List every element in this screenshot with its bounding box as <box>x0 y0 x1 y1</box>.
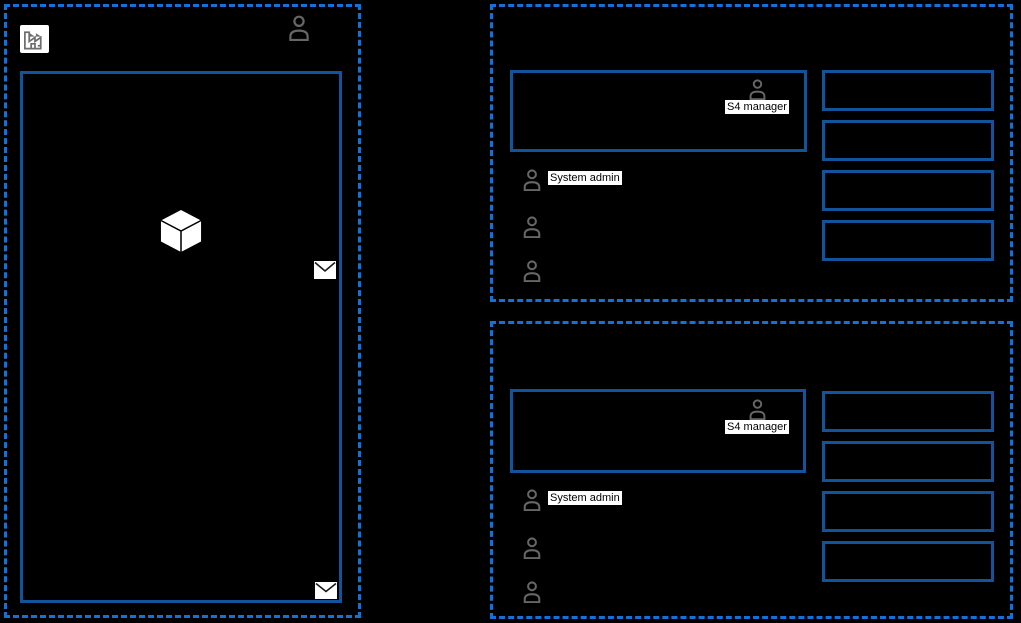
factory-icon <box>20 25 49 53</box>
person-icon <box>749 399 766 420</box>
manager-box: S4 manager <box>510 70 807 152</box>
person-icon <box>523 581 541 603</box>
manager-label: S4 manager <box>725 420 789 434</box>
bottom-right-org-group: S4 manager System admin <box>490 321 1013 619</box>
member-row: System admin <box>523 489 622 511</box>
empty-slot-box <box>822 170 994 211</box>
person-icon <box>523 489 541 511</box>
person-icon <box>523 169 541 191</box>
empty-slot-box <box>822 441 994 482</box>
empty-slot-box <box>822 220 994 261</box>
person-icon <box>749 79 766 100</box>
person-icon <box>523 537 541 559</box>
empty-slot-box <box>822 70 994 111</box>
cube-icon <box>160 209 202 258</box>
envelope-icon <box>315 582 337 604</box>
member-label: System admin <box>548 171 622 185</box>
empty-slot-box <box>822 120 994 161</box>
person-icon <box>289 15 309 41</box>
member-row <box>523 216 541 238</box>
left-system-group <box>4 4 361 618</box>
diagram-canvas: S4 manager System admin <box>0 0 1021 623</box>
envelope-icon <box>314 261 336 284</box>
empty-slot-box <box>822 541 994 582</box>
empty-slot-box <box>822 491 994 532</box>
manager-box: S4 manager <box>510 389 806 473</box>
manager: S4 manager <box>707 79 807 114</box>
member-row: System admin <box>523 169 622 191</box>
member-row <box>523 260 541 282</box>
person-icon <box>523 216 541 238</box>
member-row <box>523 537 541 559</box>
member-label: System admin <box>548 491 622 505</box>
system-container-box <box>20 71 342 603</box>
empty-slot-box <box>822 391 994 432</box>
member-row <box>523 581 541 603</box>
top-right-org-group: S4 manager System admin <box>490 4 1013 302</box>
manager: S4 manager <box>707 399 807 434</box>
manager-label: S4 manager <box>725 100 789 114</box>
person-icon <box>523 260 541 282</box>
